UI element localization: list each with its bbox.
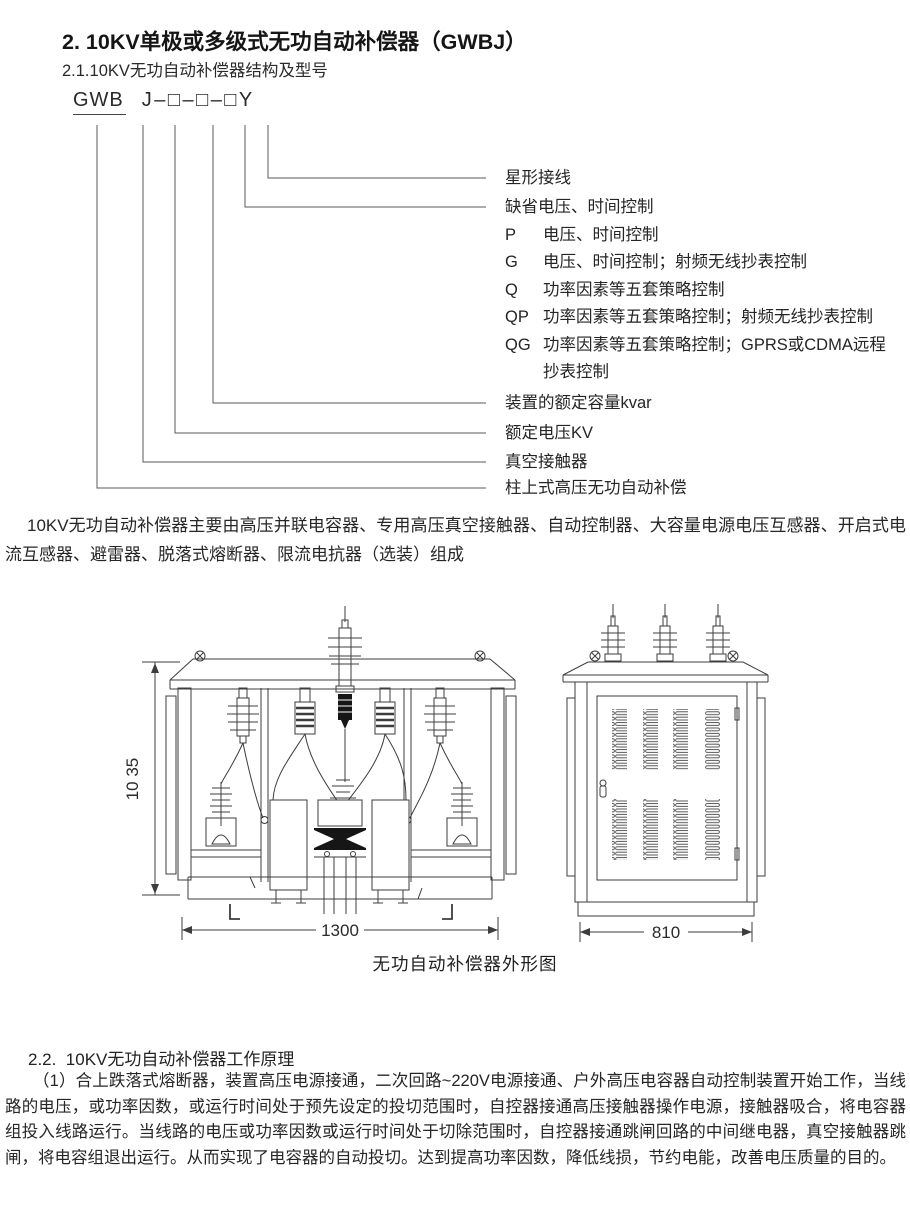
base-slab (188, 877, 492, 919)
code-letter: P (505, 225, 543, 245)
shelf-rails (191, 850, 491, 857)
working-principle-paragraph: （1）合上跌落式熔断器，装置高压电源接通，二次回路~220V电源接通、户外高压电… (5, 1069, 906, 1171)
center-transformer-unit (314, 780, 366, 914)
louver-vent (612, 709, 627, 770)
louver-vent (643, 709, 658, 770)
roof-screw-icon (590, 651, 738, 661)
code-label-row: 装置的额定容量kvar (505, 393, 652, 413)
code-letter: Q (505, 280, 543, 300)
code-label-row: P电压、时间控制 (505, 225, 659, 245)
code-label-row: QP功率因素等五套策略控制；射频无线抄表控制 (505, 307, 873, 327)
code-label-row: 额定电压KV (505, 423, 593, 443)
subsection-title: 2.1.10KV无功自动补偿器结构及型号 (62, 57, 328, 81)
front-view-drawing: 10 35 1300 (100, 592, 540, 942)
working-principle-heading: 2.2. 10KV无功自动补偿器工作原理 (28, 1045, 294, 1070)
louver-vent (705, 709, 720, 770)
code-label-text: 柱上式高压无功自动补偿 (505, 479, 687, 497)
code-letter: G (505, 252, 543, 272)
code-label-text: 装置的额定容量kvar (505, 394, 652, 412)
code-label-text: 电压、时间控制 (543, 226, 659, 244)
code-label-text: 缺省电压、时间控制 (505, 198, 654, 216)
louver-vent (612, 799, 627, 860)
model-prefix: GWB (73, 89, 126, 115)
height-dimension (142, 662, 180, 895)
code-label-text: 星形接线 (505, 169, 571, 187)
code-letter: QG (505, 335, 543, 355)
top-bushings (601, 604, 730, 661)
code-label-row: G电压、时间控制；射频无线抄表控制 (505, 252, 807, 272)
code-label-text: 功率因素等五套策略控制；射频无线抄表控制 (543, 308, 873, 326)
louver-vent (705, 799, 720, 860)
code-letter: QP (505, 307, 543, 327)
code-label-row: 星形接线 (505, 168, 571, 188)
code-label-text: 抄表控制 (543, 363, 609, 381)
figure-caption: 无功自动补偿器外形图 (20, 951, 910, 976)
model-code: GWBJ–□–□–□Y (73, 89, 255, 112)
code-label-text: 额定电压KV (505, 424, 593, 442)
code-label-row: QG功率因素等五套策略控制；GPRS或CDMA远程 (505, 335, 886, 355)
document-page: 2. 10KV单极或多级式无功自动补偿器（GWBJ） 2.1.10KV无功自动补… (0, 0, 910, 1223)
louver-vent (673, 709, 688, 770)
code-label-row: 抄表控制 (543, 362, 609, 382)
code-label-text: 电压、时间控制；射频无线抄表控制 (543, 253, 807, 271)
model-suffix: J–□–□–□Y (142, 89, 255, 111)
side-width-dim-label: 810 (652, 923, 680, 942)
louver-vent (673, 799, 688, 860)
code-label-text: 功率因素等五套策略控制；GPRS或CDMA远程 (543, 336, 886, 354)
side-view-drawing: 810 (540, 592, 910, 942)
louver-vent (643, 799, 658, 860)
front-height-dim-label: 10 35 (123, 758, 142, 801)
roof (563, 662, 768, 682)
cabinet-base (578, 902, 754, 916)
code-label-row: 真空接触器 (505, 452, 588, 472)
code-label-row: Q功率因素等五套策略控制 (505, 280, 725, 300)
front-width-dim-label: 1300 (321, 921, 359, 940)
cabinet-door (597, 696, 739, 880)
composition-paragraph: 10KV无功自动补偿器主要由高压并联电容器、专用高压真空接触器、自动控制器、大容… (5, 511, 906, 569)
code-label-text: 功率因素等五套策略控制 (543, 281, 725, 299)
section-title: 2. 10KV单极或多级式无功自动补偿器（GWBJ） (62, 25, 527, 56)
code-label-row: 缺省电压、时间控制 (505, 197, 654, 217)
center-bushing (328, 606, 362, 782)
door-handle (600, 780, 606, 797)
code-label-row: 柱上式高压无功自动补偿 (505, 478, 687, 498)
code-label-text: 真空接触器 (505, 453, 588, 471)
